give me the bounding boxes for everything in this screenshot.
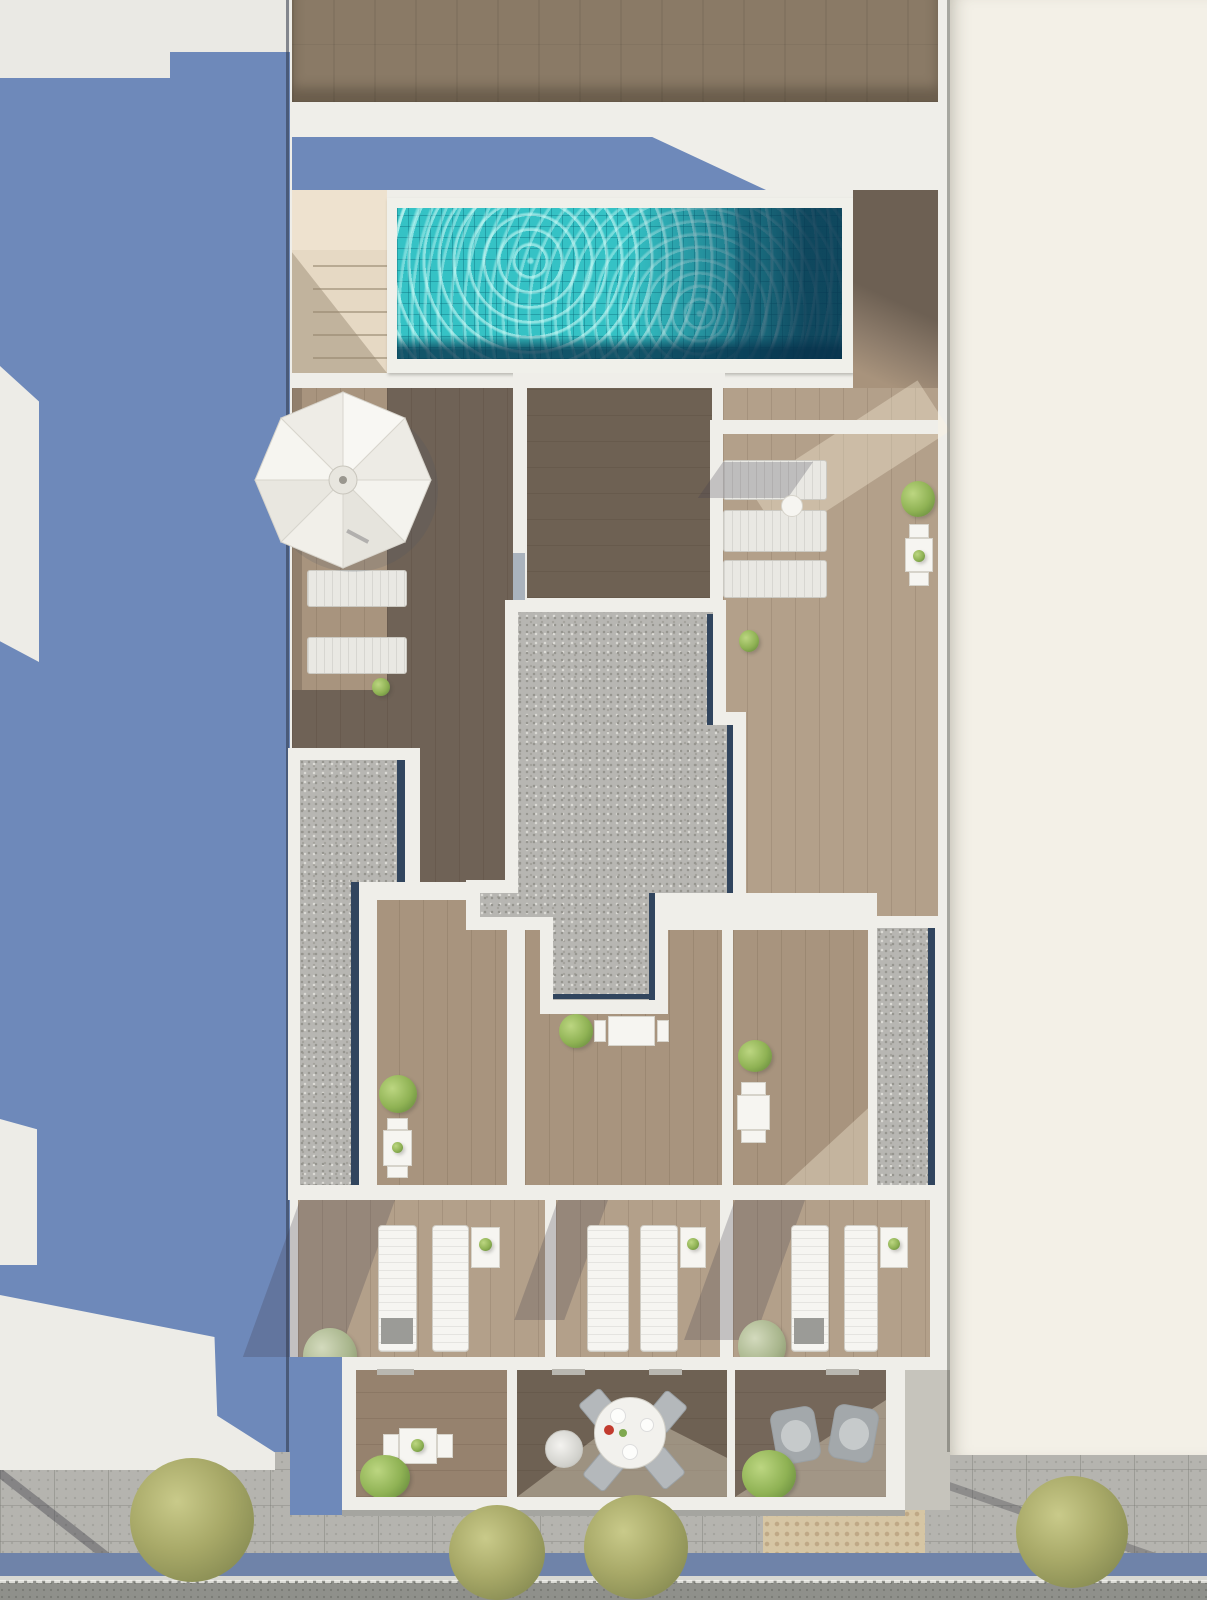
left-passage-shadow <box>290 1357 342 1515</box>
right-building-facade <box>950 0 1207 1455</box>
terrace-bush <box>742 1450 796 1500</box>
right-gravel-roof <box>877 928 935 1185</box>
sun-lounger <box>640 1225 678 1352</box>
aerial-render-stage <box>0 0 1207 1600</box>
glass-railing <box>649 893 655 1000</box>
bistro-table <box>737 1095 770 1130</box>
bistro-chair <box>594 1020 606 1042</box>
terrace-right-gray-strip <box>905 1370 950 1510</box>
sun-lounger <box>307 570 407 607</box>
right-building-edge-line <box>947 0 950 1452</box>
left-gravel-roof-narrow <box>300 882 351 1187</box>
stairs-landing <box>292 190 387 250</box>
bistro-chair <box>387 1118 408 1130</box>
plate <box>610 1408 626 1424</box>
right-court-top-band <box>710 420 938 434</box>
left-building-shadow-step <box>170 52 290 78</box>
left-roof-sunlit-patch <box>0 366 39 662</box>
bistro-chair <box>657 1020 669 1042</box>
glass-railing <box>351 882 359 1187</box>
terrace1-left-wall <box>342 1370 356 1510</box>
patio-frame-shadow <box>513 553 525 603</box>
potted-plant <box>372 678 390 696</box>
roof-wood-strip <box>292 0 938 102</box>
sun-lounger <box>723 560 827 598</box>
patio-dark-wood <box>527 388 712 598</box>
glass-railing <box>397 760 405 882</box>
table-plant <box>479 1238 492 1251</box>
left-building-shadow <box>0 78 290 1452</box>
potted-plant <box>559 1014 593 1048</box>
door-track <box>552 1369 585 1375</box>
pool-lane-shade <box>735 208 761 359</box>
potted-plant <box>738 1040 772 1072</box>
court1-right-wall <box>507 900 525 1193</box>
sun-lounger <box>723 510 827 552</box>
table-plant <box>411 1439 424 1452</box>
street-tree <box>584 1495 688 1599</box>
stair-step-line <box>313 265 387 267</box>
stair-step-line <box>313 288 387 290</box>
foot-mat <box>381 1318 413 1344</box>
bistro-chair <box>909 524 929 538</box>
terrace-divider-wall <box>727 1370 735 1497</box>
glass-railing <box>928 928 935 1185</box>
potted-plant <box>901 481 935 517</box>
bays-top-band <box>290 1185 938 1200</box>
left-roof-small-patch <box>0 1119 37 1265</box>
sun-lounger <box>587 1225 629 1352</box>
pool-stairs <box>292 190 387 373</box>
green-bowl <box>619 1429 627 1437</box>
swimming-pool-water <box>397 208 842 359</box>
parasol-canopy <box>255 392 431 568</box>
red-bowl <box>604 1425 614 1435</box>
bistro-chair <box>741 1082 766 1095</box>
bistro-table <box>608 1016 655 1046</box>
potted-plant <box>739 630 759 652</box>
bistro-chair <box>387 1166 408 1178</box>
potted-plant <box>379 1075 417 1113</box>
side-table-round <box>781 495 803 517</box>
walkway-dark-west <box>292 690 387 748</box>
door-track <box>826 1369 859 1375</box>
terrace-bush <box>360 1455 410 1499</box>
sun-lounger <box>432 1225 469 1352</box>
terrace-divider-wall <box>507 1370 517 1497</box>
bistro-chair <box>909 572 929 586</box>
bistro-chair <box>741 1130 766 1143</box>
table-plant <box>913 550 925 562</box>
glass-railing <box>727 725 733 893</box>
street-tree <box>1016 1476 1128 1588</box>
plate <box>640 1418 654 1432</box>
sun-lounger <box>307 637 407 674</box>
pool-deck-shaded <box>853 190 938 388</box>
street-tree <box>449 1505 545 1600</box>
door-track <box>649 1369 682 1375</box>
glass-railing <box>553 994 655 999</box>
door-track <box>377 1369 414 1375</box>
parasol <box>252 389 434 571</box>
left-gravel-roof-wide <box>300 760 397 882</box>
parasol-pole <box>339 476 347 484</box>
table-plant <box>888 1238 900 1250</box>
pouf <box>545 1430 583 1468</box>
bistro-chair <box>437 1434 453 1458</box>
right-court-left-wall <box>710 434 723 604</box>
table-plant <box>392 1142 403 1153</box>
court2-right-wall <box>722 893 733 1193</box>
terrace3-right-wall <box>886 1370 905 1510</box>
glass-railing <box>707 614 713 725</box>
foot-mat <box>794 1318 824 1344</box>
street-tree <box>130 1458 254 1582</box>
table-plant <box>687 1238 699 1250</box>
sun-lounger <box>844 1225 878 1352</box>
plate <box>622 1444 638 1460</box>
